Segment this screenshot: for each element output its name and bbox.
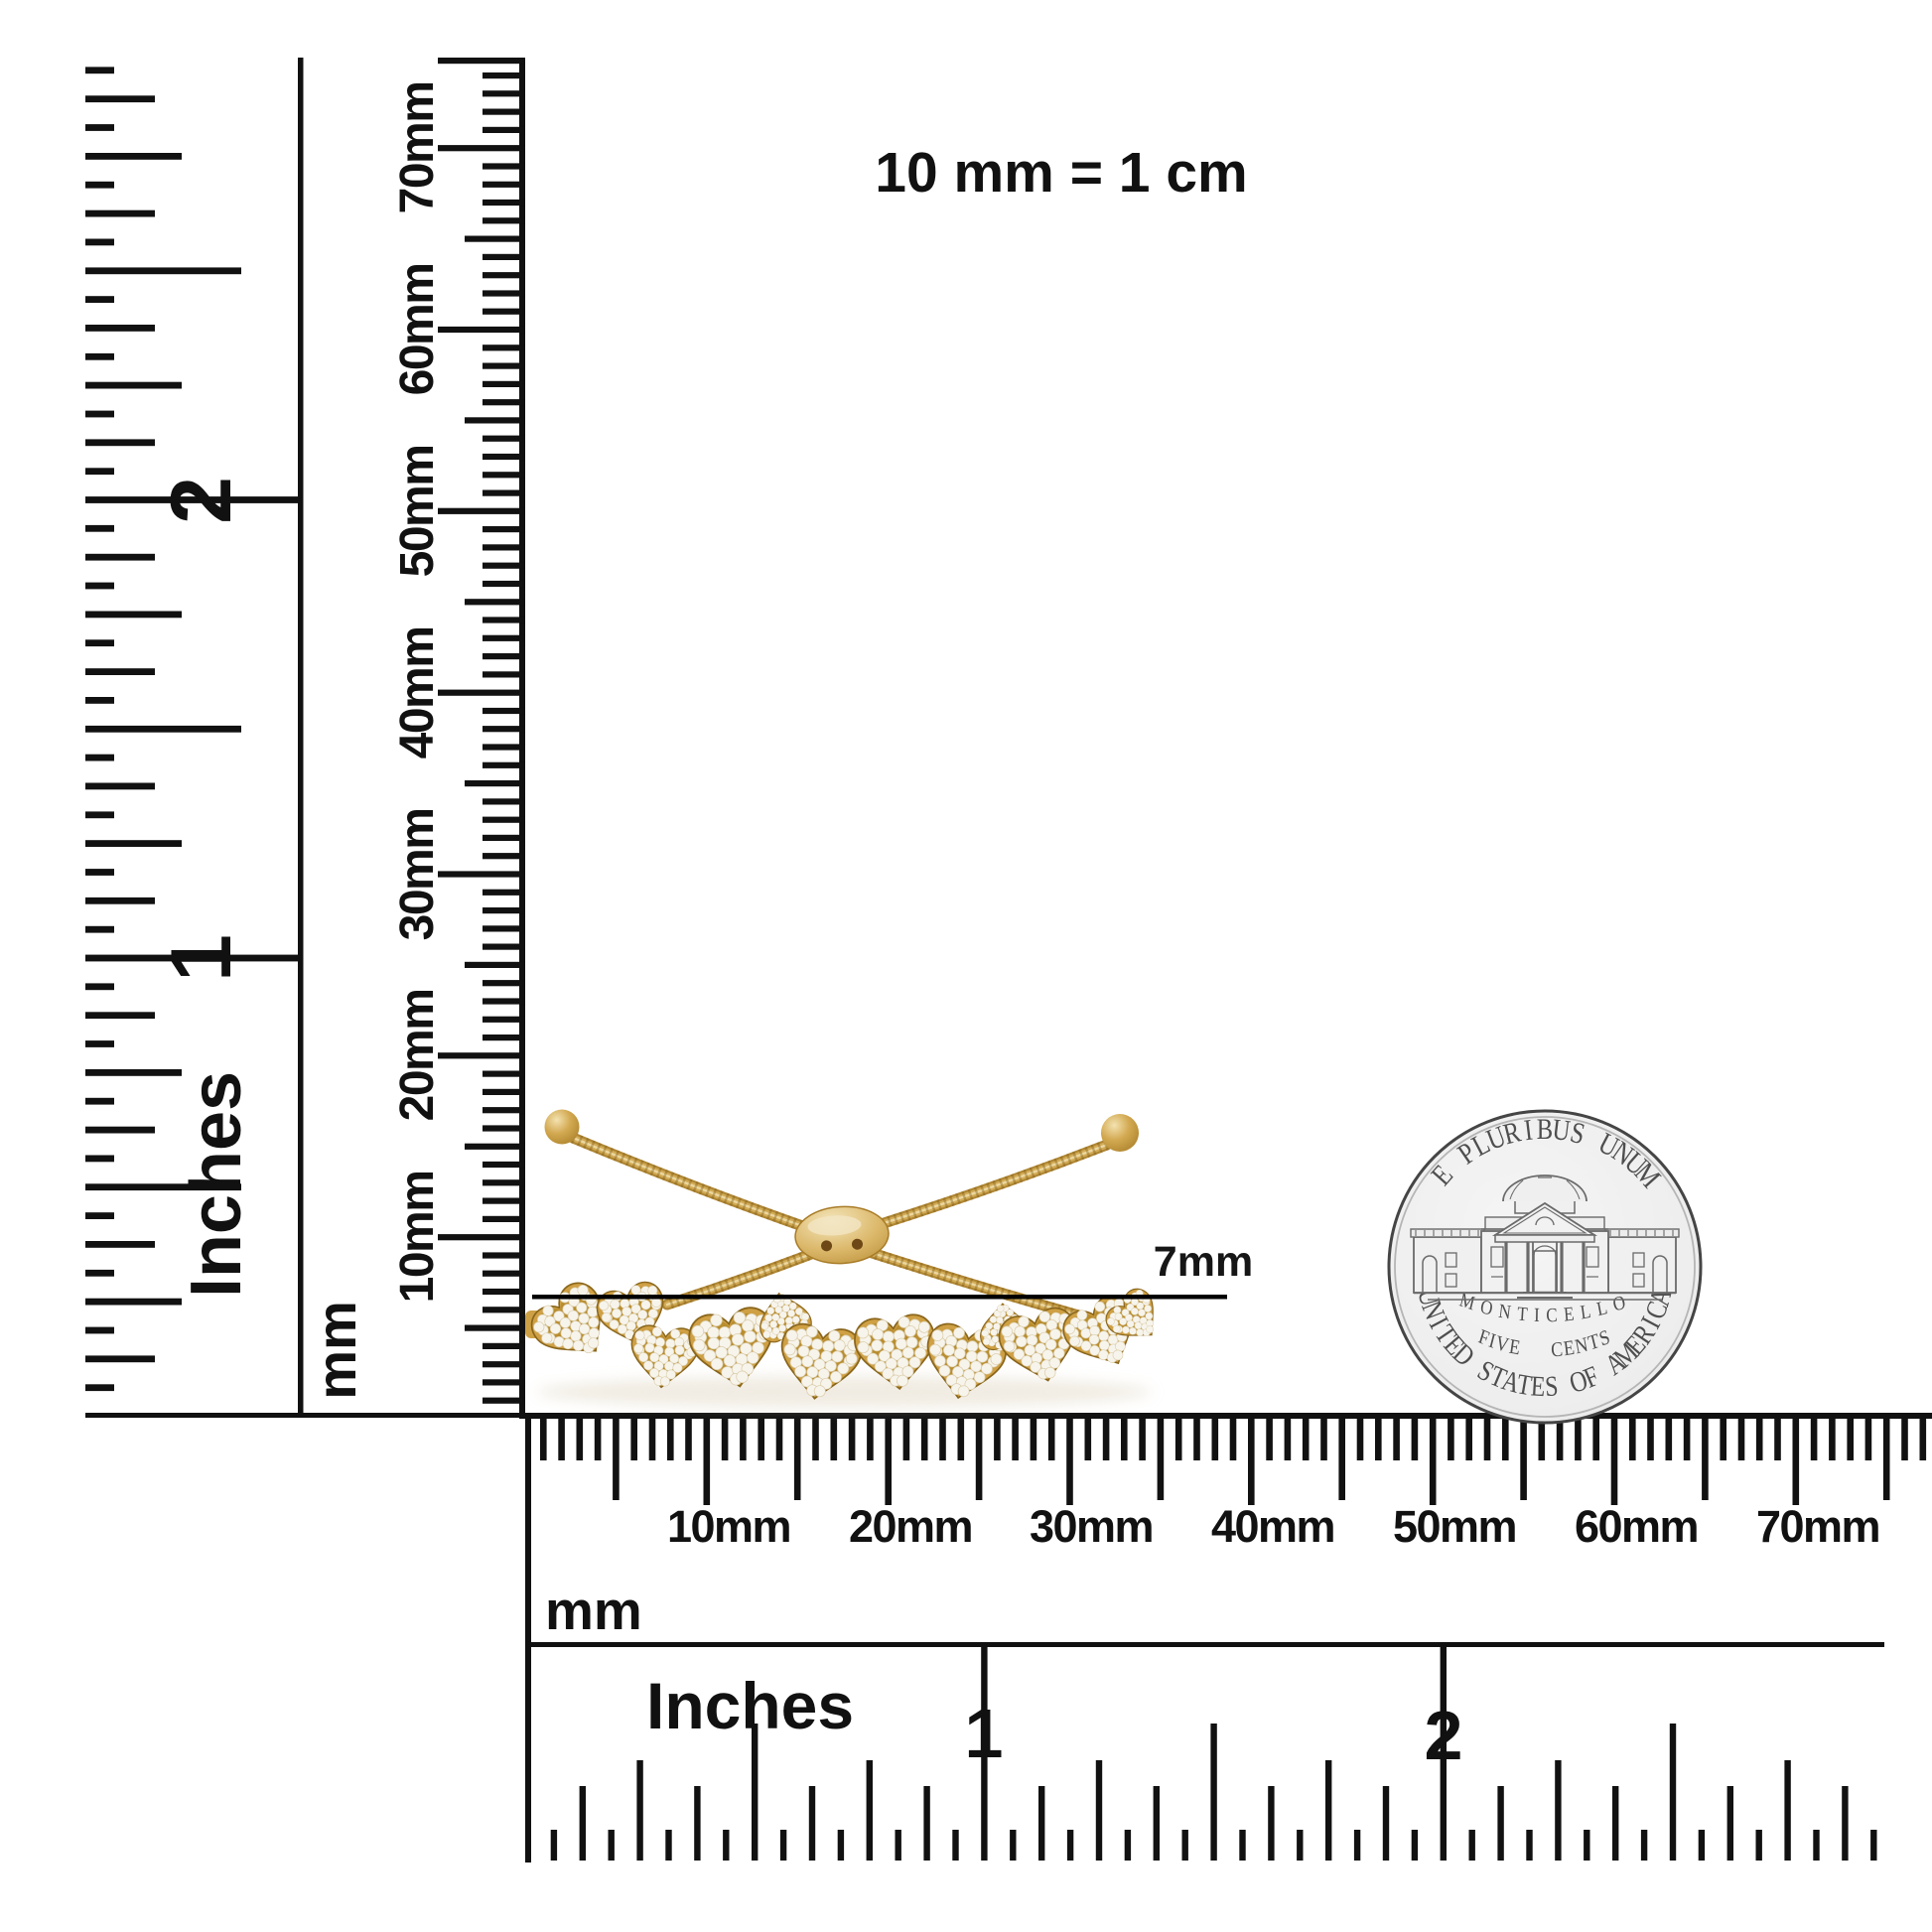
svg-text:7mm: 7mm (1154, 1238, 1253, 1286)
svg-text:10 mm = 1 cm: 10 mm = 1 cm (875, 141, 1247, 205)
svg-text:10mm: 10mm (391, 1172, 444, 1304)
svg-text:60mm: 60mm (1575, 1501, 1698, 1552)
svg-text:mm: mm (545, 1580, 642, 1641)
svg-text:50mm: 50mm (391, 446, 444, 578)
svg-text:Inches: Inches (646, 1669, 854, 1742)
svg-text:10mm: 10mm (667, 1501, 790, 1552)
svg-text:70mm: 70mm (391, 82, 444, 214)
svg-text:30mm: 30mm (1030, 1501, 1153, 1552)
svg-text:20mm: 20mm (391, 990, 444, 1122)
svg-text:Inches: Inches (177, 1071, 256, 1298)
svg-text:20mm: 20mm (849, 1501, 972, 1552)
svg-text:mm: mm (305, 1301, 367, 1400)
svg-text:30mm: 30mm (391, 809, 444, 941)
svg-text:50mm: 50mm (1393, 1501, 1516, 1552)
svg-text:70mm: 70mm (1756, 1501, 1879, 1552)
svg-text:60mm: 60mm (391, 264, 444, 396)
svg-text:2: 2 (1425, 1697, 1463, 1774)
svg-text:S: S (1544, 1369, 1559, 1403)
svg-text:1: 1 (965, 1695, 1004, 1772)
svg-text:40mm: 40mm (391, 627, 444, 759)
svg-text:1: 1 (154, 934, 249, 982)
svg-text:40mm: 40mm (1211, 1501, 1334, 1552)
svg-text:2: 2 (154, 477, 249, 524)
